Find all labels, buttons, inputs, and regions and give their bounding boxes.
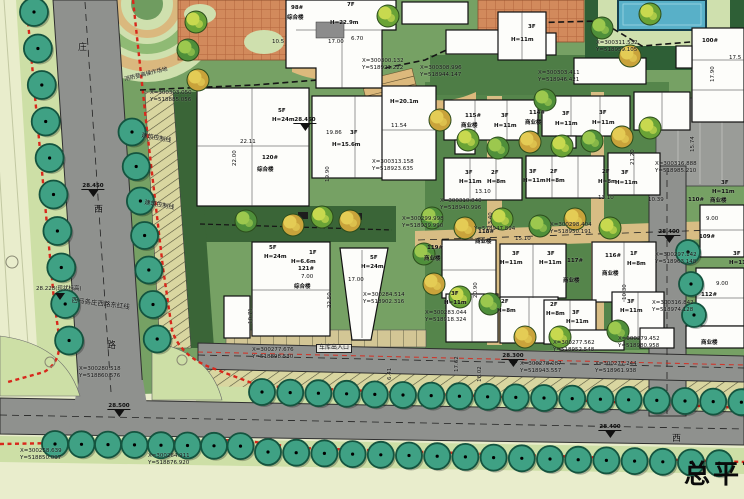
ornamental-tree	[487, 137, 509, 159]
ornamental-tree	[639, 3, 661, 25]
ornamental-tree	[454, 217, 476, 239]
drawing-title: 总平面图	[684, 454, 744, 491]
ornamental-tree	[599, 217, 621, 239]
building-109	[700, 205, 744, 257]
ornamental-tree	[534, 89, 556, 111]
building-121	[252, 242, 330, 336]
ornamental-tree	[479, 293, 501, 315]
site-plan-canvas: 庄西路西西马各庄西路东红线建筑控制线建筑控制线消防登高操作场地28.228(现状…	[0, 0, 744, 499]
ornamental-tree	[581, 130, 603, 152]
ornamental-tree	[619, 45, 641, 67]
ornamental-tree	[611, 126, 633, 148]
building-100	[692, 28, 744, 122]
ornamental-tree	[282, 214, 304, 236]
swimming-pool	[618, 0, 706, 30]
ornamental-tree	[491, 208, 513, 230]
ornamental-tree	[413, 243, 435, 265]
building-119	[442, 240, 496, 298]
ornamental-tree	[423, 273, 445, 295]
building-120	[197, 88, 309, 206]
ornamental-tree	[607, 320, 629, 342]
ornamental-tree	[529, 215, 551, 237]
ornamental-tree	[639, 117, 661, 139]
ornamental-tree	[235, 210, 257, 232]
ornamental-tree	[187, 69, 209, 91]
ornamental-tree	[429, 109, 451, 131]
ornamental-tree	[591, 17, 613, 39]
site-plan-drawing	[0, 0, 744, 499]
ornamental-tree	[551, 135, 573, 157]
ornamental-tree	[177, 39, 199, 61]
ornamental-tree	[449, 286, 471, 308]
ornamental-tree	[421, 207, 443, 229]
ornamental-tree	[457, 129, 479, 151]
ornamental-tree	[514, 326, 536, 348]
ornamental-tree	[185, 11, 207, 33]
ornamental-tree	[339, 210, 361, 232]
ornamental-tree	[377, 5, 399, 27]
ornamental-tree	[519, 131, 541, 153]
ornamental-tree	[311, 206, 333, 228]
ornamental-tree	[564, 208, 586, 230]
ornamental-tree	[549, 326, 571, 348]
